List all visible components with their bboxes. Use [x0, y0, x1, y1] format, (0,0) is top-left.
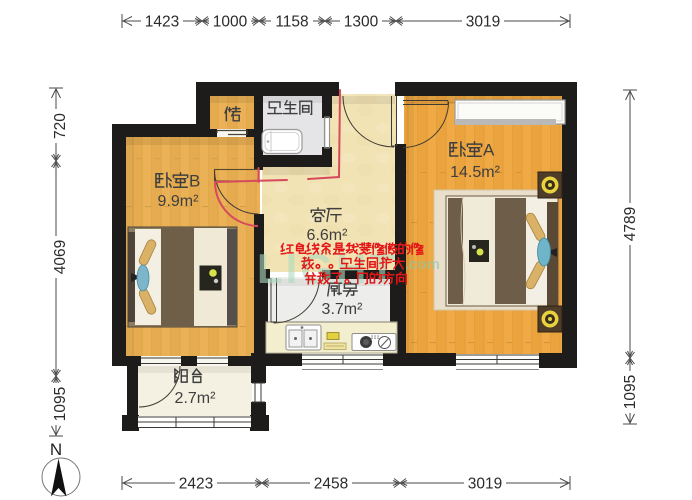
svg-text:2458: 2458	[314, 476, 348, 493]
svg-text:1095: 1095	[52, 387, 69, 421]
svg-text:1300: 1300	[344, 14, 379, 31]
svg-text:9.9m²: 9.9m²	[158, 193, 200, 210]
svg-text:1000: 1000	[213, 14, 248, 31]
svg-text:14.5m²: 14.5m²	[450, 164, 500, 181]
svg-text:4789: 4789	[622, 207, 639, 241]
svg-text:1423: 1423	[145, 14, 179, 31]
svg-text:2.7m²: 2.7m²	[175, 390, 217, 407]
svg-text:3019: 3019	[468, 476, 502, 493]
svg-text:3019: 3019	[466, 14, 500, 31]
svg-text:1095: 1095	[622, 375, 639, 409]
svg-text:B: B	[189, 172, 200, 191]
svg-text:4069: 4069	[52, 240, 69, 274]
svg-text:N: N	[50, 440, 62, 459]
svg-text:1158: 1158	[275, 14, 308, 31]
svg-text:3.7m²: 3.7m²	[322, 301, 364, 318]
svg-text:2423: 2423	[179, 476, 213, 493]
svg-text:A: A	[483, 141, 495, 160]
svg-text:6.6m²: 6.6m²	[307, 227, 349, 244]
svg-text:.com: .com	[405, 256, 440, 273]
svg-text:720: 720	[52, 113, 69, 139]
